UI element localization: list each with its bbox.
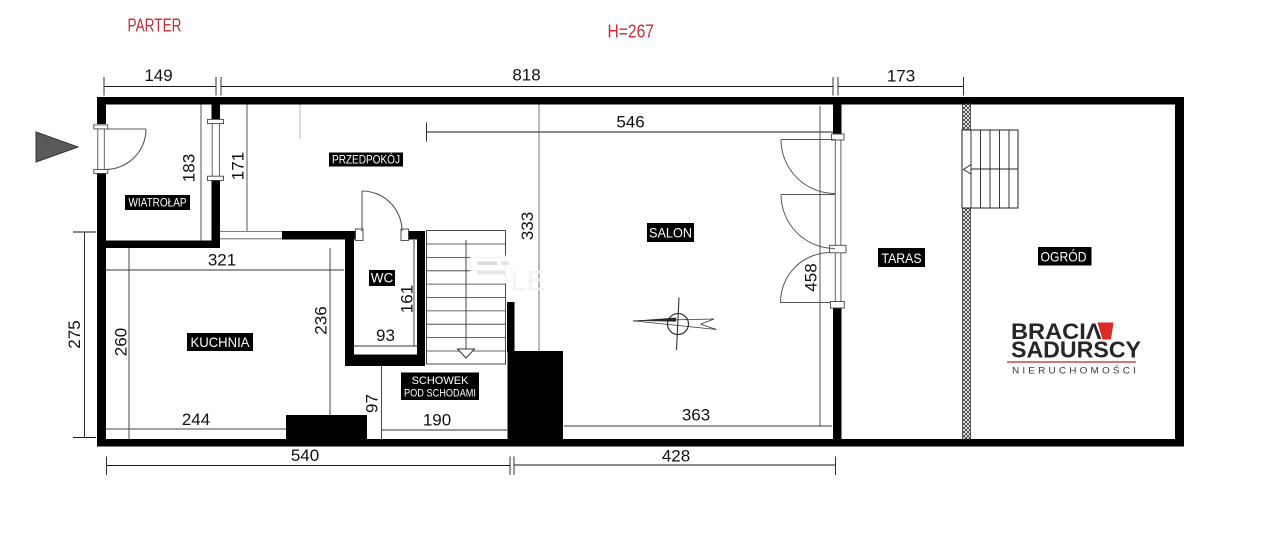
svg-text:244: 244 — [182, 410, 210, 429]
svg-text:KUCHNIA: KUCHNIA — [191, 334, 251, 350]
svg-text:93: 93 — [376, 326, 395, 345]
svg-text:260: 260 — [112, 328, 131, 356]
svg-text:WIATROŁAP: WIATROŁAP — [129, 196, 187, 210]
svg-text:LE: LE — [511, 265, 545, 296]
svg-text:540: 540 — [291, 446, 319, 465]
svg-text:363: 363 — [682, 406, 710, 425]
svg-text:275: 275 — [65, 320, 84, 348]
svg-text:POD SCHODAMI: POD SCHODAMI — [404, 388, 476, 400]
svg-text:PRZEDPOKÓJ: PRZEDPOKÓJ — [332, 152, 400, 167]
svg-text:333: 333 — [518, 212, 537, 240]
svg-text:190: 190 — [423, 411, 451, 430]
svg-text:546: 546 — [616, 113, 644, 132]
svg-text:171: 171 — [229, 152, 248, 180]
svg-text:H=267: H=267 — [608, 22, 655, 42]
svg-text:321: 321 — [208, 251, 236, 270]
svg-text:161: 161 — [398, 285, 417, 313]
svg-text:818: 818 — [512, 66, 540, 85]
svg-text:183: 183 — [180, 154, 199, 182]
svg-text:NIERUCHOMOŚCI: NIERUCHOMOŚCI — [1012, 365, 1139, 377]
svg-text:SADURSCY: SADURSCY — [1011, 337, 1141, 363]
svg-text:428: 428 — [662, 447, 690, 466]
svg-text:WC: WC — [371, 271, 394, 286]
svg-text:97: 97 — [363, 394, 382, 413]
svg-text:SALON: SALON — [649, 225, 692, 241]
svg-text:TARAS: TARAS — [882, 250, 922, 266]
svg-text:173: 173 — [887, 67, 915, 86]
svg-text:236: 236 — [312, 306, 331, 334]
svg-text:PARTER: PARTER — [128, 16, 182, 36]
svg-text:458: 458 — [802, 263, 821, 291]
svg-text:149: 149 — [144, 66, 172, 85]
svg-text:OGRÓD: OGRÓD — [1041, 249, 1087, 265]
svg-text:SCHOWEK: SCHOWEK — [412, 375, 470, 387]
